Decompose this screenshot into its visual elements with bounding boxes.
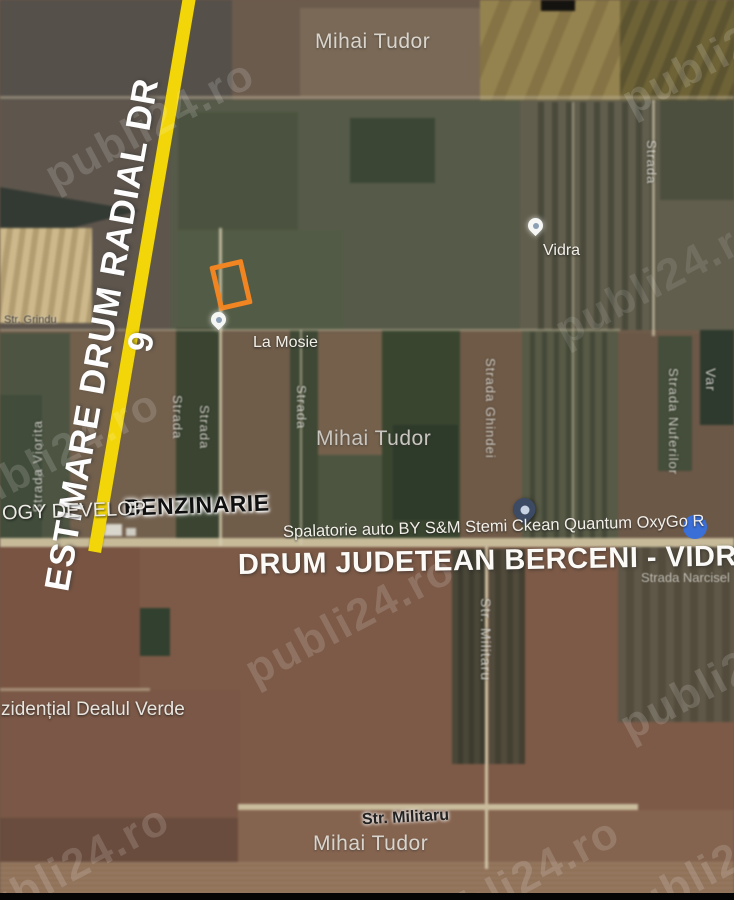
tree-row xyxy=(290,330,318,545)
road-line xyxy=(300,330,302,545)
street-label-vertical-militaru: Str. Militaru xyxy=(478,598,494,681)
place-label-la-mosie: La Mosie xyxy=(253,334,318,352)
place-label-mihai-tudor-bottom: Mihai Tudor xyxy=(313,832,428,856)
road-label-str-grindu: Str. Grindu xyxy=(4,314,57,326)
place-label-rezidential-dealul-verde: zidențial Dealul Verde xyxy=(1,699,185,721)
street-label-vertical: Strada Viorita xyxy=(30,420,45,513)
street-label-vertical: Strada xyxy=(644,140,659,184)
place-label-mihai-tudor-mid: Mihai Tudor xyxy=(316,427,431,451)
field-patch xyxy=(178,230,343,335)
street-label-vertical: Strada xyxy=(197,405,212,449)
satellite-map-screenshot: ESTIMARE DRUM RADIAL DR 9 Mihai Tudor Vi… xyxy=(0,0,734,900)
field-patch xyxy=(0,228,92,323)
place-label-vidra: Vidra xyxy=(543,242,580,260)
bottom-black-bar xyxy=(0,893,734,900)
street-label-vertical-var: Var xyxy=(703,368,719,392)
place-label-mihai-tudor-top: Mihai Tudor xyxy=(315,30,430,54)
tree-row xyxy=(489,549,525,764)
street-label-vertical: Strada Nuferilor xyxy=(666,368,681,475)
tree-block xyxy=(140,608,170,656)
vidra-pin-icon xyxy=(528,218,543,233)
dark-structure xyxy=(541,0,575,11)
street-label-vertical: Strada xyxy=(170,395,185,439)
road-line xyxy=(0,688,150,691)
street-label-vertical: Strada Ghindei xyxy=(483,358,498,459)
village-houses xyxy=(530,332,610,544)
street-label-vertical: Strada xyxy=(294,385,309,429)
road-line xyxy=(485,547,488,869)
village-houses xyxy=(660,100,734,200)
la-mosie-pin-icon xyxy=(211,312,226,327)
field-patch xyxy=(350,118,435,183)
